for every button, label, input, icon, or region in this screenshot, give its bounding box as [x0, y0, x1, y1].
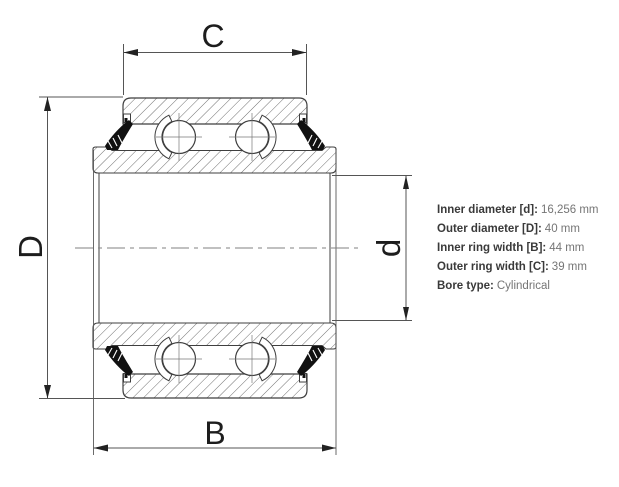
seal-bottom-right: [297, 346, 325, 382]
spec-bore-type-value: Cylindrical: [497, 280, 550, 292]
dim-C-arrow-left: [124, 49, 139, 56]
spec-outer-ring-width: Outer ring width [C]:39 mm: [437, 258, 615, 277]
spec-inner-ring-width-value: 44 mm: [549, 242, 584, 254]
spec-inner-ring-width: Inner ring width [B]:44 mm: [437, 239, 615, 258]
spec-inner-diameter-value: 16,256 mm: [541, 204, 599, 216]
dim-d-arrow-top: [403, 176, 409, 190]
spec-outer-ring-width-label: Outer ring width [C]:: [437, 261, 549, 273]
dim-label-D: D: [12, 235, 49, 259]
spec-inner-diameter: Inner diameter [d]:16,256 mm: [437, 201, 615, 220]
spec-outer-ring-width-value: 39 mm: [552, 261, 587, 273]
dim-D-arrow-bottom: [44, 385, 51, 399]
inner-ring-top: [93, 147, 336, 173]
outer-ring-top: [123, 98, 307, 124]
dim-B-arrow-right: [322, 445, 336, 452]
spec-outer-diameter-value: 40 mm: [545, 223, 580, 235]
spec-outer-diameter-label: Outer diameter [D]:: [437, 223, 542, 235]
outer-ring-bottom: [123, 374, 307, 398]
spec-inner-ring-width-label: Inner ring width [B]:: [437, 242, 546, 254]
spec-bore-type: Bore type:Cylindrical: [437, 277, 615, 296]
dim-label-d: d: [370, 239, 407, 257]
spec-outer-diameter: Outer diameter [D]:40 mm: [437, 220, 615, 239]
seal-top-right: [297, 114, 325, 150]
spec-inner-diameter-label: Inner diameter [d]:: [437, 204, 538, 216]
dim-d-arrow-bottom: [403, 307, 409, 321]
dim-D-arrow-top: [44, 97, 51, 111]
inner-ring-bottom: [93, 323, 336, 349]
dim-label-B: B: [204, 415, 225, 451]
dim-B-arrow-left: [94, 445, 109, 452]
dim-label-C: C: [201, 18, 224, 54]
spec-panel: Inner diameter [d]:16,256 mm Outer diame…: [437, 201, 615, 296]
seal-bottom-left: [105, 346, 133, 382]
seal-top-left: [105, 114, 133, 150]
dim-C-arrow-right: [292, 49, 307, 56]
spec-bore-type-label: Bore type:: [437, 280, 494, 292]
